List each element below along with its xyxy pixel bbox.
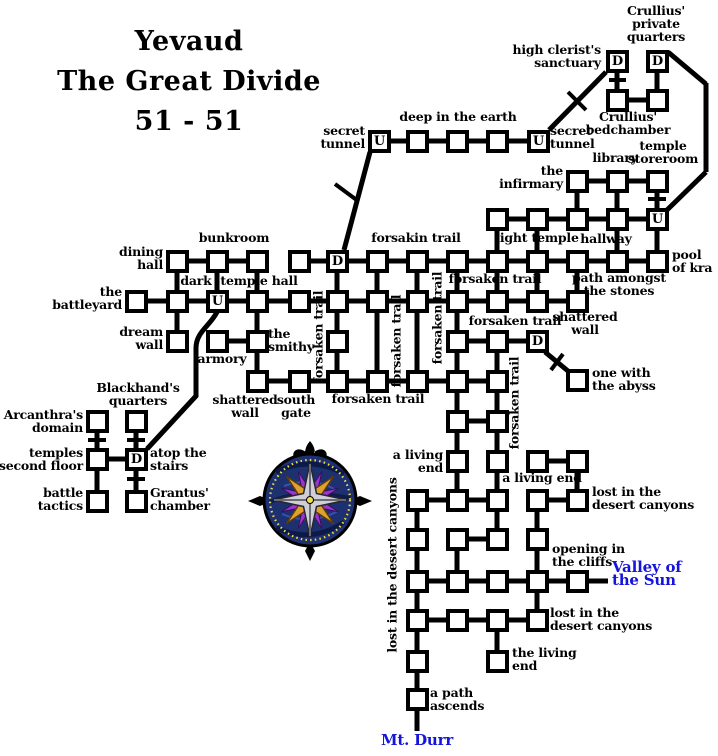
room[interactable] <box>246 290 269 313</box>
room[interactable] <box>246 250 269 273</box>
map-label: atop the stairs <box>150 446 207 472</box>
the-infirmary[interactable] <box>566 170 589 193</box>
map-label: forsaken trail <box>449 272 542 285</box>
connector-line <box>668 52 706 84</box>
room[interactable] <box>486 290 509 313</box>
lost-in-the-desert-canyons-ne[interactable] <box>566 489 589 512</box>
opening-in-the-cliffs[interactable] <box>526 528 549 551</box>
room[interactable] <box>486 528 509 551</box>
blackhands-quarters[interactable] <box>125 410 148 433</box>
room[interactable] <box>486 208 509 231</box>
room[interactable] <box>526 489 549 512</box>
room[interactable] <box>288 250 311 273</box>
map-label: a living end <box>393 448 443 474</box>
map-label: high clerist's sanctuary <box>512 43 601 69</box>
room[interactable] <box>446 609 469 632</box>
room[interactable] <box>406 489 429 512</box>
map-label: Crullius' private quarters <box>627 4 685 43</box>
map-label: armory <box>198 352 247 365</box>
room[interactable] <box>288 290 311 313</box>
map-label: secret tunnel <box>320 124 365 150</box>
abyss-door[interactable]: D <box>526 330 549 353</box>
map-label: Crullius' bedchamber <box>586 110 671 136</box>
connector-line <box>667 172 706 210</box>
room[interactable] <box>406 290 429 313</box>
shattered-wall[interactable] <box>246 370 269 393</box>
room[interactable] <box>166 290 189 313</box>
room[interactable] <box>406 528 429 551</box>
secret-tunnel-east[interactable]: U <box>527 130 550 153</box>
dining-hall[interactable] <box>166 250 189 273</box>
map-label: a living end <box>502 471 582 484</box>
bunkroom[interactable] <box>206 250 229 273</box>
temple-storeroom[interactable] <box>646 170 669 193</box>
map-label: lost in the desert canyons <box>550 606 652 632</box>
room[interactable] <box>486 330 509 353</box>
room[interactable] <box>326 330 349 353</box>
room[interactable] <box>526 290 549 313</box>
map-title-levels: 51 - 51 <box>44 102 334 142</box>
library[interactable] <box>606 170 629 193</box>
room[interactable] <box>486 489 509 512</box>
arcanthras-domain[interactable] <box>86 410 109 433</box>
map-label: forsaken trail <box>390 295 403 388</box>
room[interactable] <box>486 250 509 273</box>
map-label: temples second floor <box>0 446 83 472</box>
map-label: temple storeroom <box>628 139 698 165</box>
temples-second-floor[interactable] <box>86 448 109 471</box>
map-label: lost in the desert canyons <box>592 485 694 511</box>
a-living-end-west[interactable] <box>446 450 469 473</box>
the-living-end[interactable] <box>486 650 509 673</box>
room[interactable] <box>406 609 429 632</box>
armory[interactable] <box>206 330 229 353</box>
deep-in-the-earth-3[interactable] <box>486 130 509 153</box>
map-label: battle tactics <box>38 486 83 512</box>
map-label: temple hall <box>220 274 297 287</box>
room[interactable] <box>526 609 549 632</box>
map-label: the living end <box>512 646 577 672</box>
map-label: dark <box>180 274 211 287</box>
forsakin-trail-down[interactable]: D <box>326 250 349 273</box>
map-label: deep in the earth <box>399 110 516 123</box>
room[interactable] <box>366 290 389 313</box>
map-label: forsakin trail <box>371 231 460 244</box>
room[interactable] <box>446 570 469 593</box>
map-label: dream wall <box>119 325 163 351</box>
the-battleyard[interactable] <box>125 290 148 313</box>
map-label: pool of kra <box>672 248 712 274</box>
room[interactable] <box>446 528 469 551</box>
map-label: forsaken trail <box>431 272 444 365</box>
room[interactable] <box>406 570 429 593</box>
room[interactable] <box>526 570 549 593</box>
room[interactable] <box>526 208 549 231</box>
map-label: Grantus' chamber <box>150 486 210 512</box>
dark-temple-hall[interactable]: U <box>206 290 229 313</box>
room[interactable] <box>526 250 549 273</box>
hallway[interactable] <box>606 208 629 231</box>
map-label: shattered wall <box>212 393 277 419</box>
map-label: south gate <box>277 393 315 419</box>
temple-storeroom-stairs[interactable]: U <box>646 208 669 231</box>
map-label: hallway <box>580 232 631 245</box>
map-label: Blackhand's quarters <box>96 381 179 407</box>
map-label: Mt. Durr <box>381 734 453 747</box>
map-title-area: The Great Divide <box>44 62 334 102</box>
room[interactable] <box>366 370 389 393</box>
battle-tactics[interactable] <box>86 490 109 513</box>
room[interactable] <box>446 290 469 313</box>
map-label: forsaken trail <box>469 314 562 327</box>
map-label: forsaken trail <box>332 392 425 405</box>
room[interactable] <box>326 290 349 313</box>
one-with-the-abyss[interactable] <box>566 369 589 392</box>
map-label: a path ascends <box>430 686 484 712</box>
room[interactable] <box>326 370 349 393</box>
map-label: lost in the desert canyons <box>386 477 399 652</box>
map-label: dining hall <box>119 245 163 271</box>
map-label: forsaken trail <box>508 357 521 450</box>
map-label: the smithy <box>268 327 314 353</box>
high-clerists-sanctuary[interactable]: D <box>606 50 629 73</box>
room[interactable] <box>486 609 509 632</box>
map-label: bunkroom <box>199 231 269 244</box>
map-title: Yevaud The Great Divide 51 - 51 <box>44 22 334 142</box>
room[interactable] <box>406 250 429 273</box>
room[interactable] <box>366 250 389 273</box>
grantus-chamber[interactable] <box>125 490 148 513</box>
map-label: shattered wall <box>552 310 617 336</box>
map-label: Arcanthra's domain <box>4 408 83 434</box>
room[interactable] <box>446 489 469 512</box>
map-label: the infirmary <box>499 164 563 190</box>
deep-in-the-earth-2[interactable] <box>446 130 469 153</box>
room[interactable] <box>406 650 429 673</box>
map-label: one with the abyss <box>592 366 656 392</box>
compass-rose <box>248 441 372 561</box>
the-smithy[interactable] <box>246 330 269 353</box>
valley-of-the-sun-exit[interactable] <box>566 570 589 593</box>
room[interactable] <box>446 410 469 433</box>
map-title-zone: Yevaud <box>44 22 334 62</box>
door-tick <box>335 184 358 201</box>
mud-map-canvas: Yevaud The Great Divide 51 - 51 DDUUUDUD… <box>0 0 718 756</box>
room[interactable] <box>446 370 469 393</box>
deep-in-the-earth-1[interactable] <box>406 130 429 153</box>
compass-hub <box>307 497 314 504</box>
room[interactable] <box>446 250 469 273</box>
atop-the-stairs[interactable]: D <box>125 448 148 471</box>
a-path-ascends[interactable] <box>406 688 429 711</box>
map-label: path amongst the stones <box>572 271 666 297</box>
map-label: light temple <box>495 231 578 244</box>
room[interactable] <box>486 570 509 593</box>
room[interactable] <box>446 330 469 353</box>
map-label: forsaken trail <box>312 291 325 384</box>
dream-wall[interactable] <box>166 330 189 353</box>
map-label: Valley of the Sun <box>612 561 682 587</box>
secret-tunnel-west[interactable]: U <box>368 130 391 153</box>
south-gate[interactable] <box>288 370 311 393</box>
map-label: the battleyard <box>52 285 122 311</box>
room[interactable] <box>566 208 589 231</box>
crullius-private-quarters[interactable]: D <box>646 50 669 73</box>
room[interactable] <box>406 370 429 393</box>
